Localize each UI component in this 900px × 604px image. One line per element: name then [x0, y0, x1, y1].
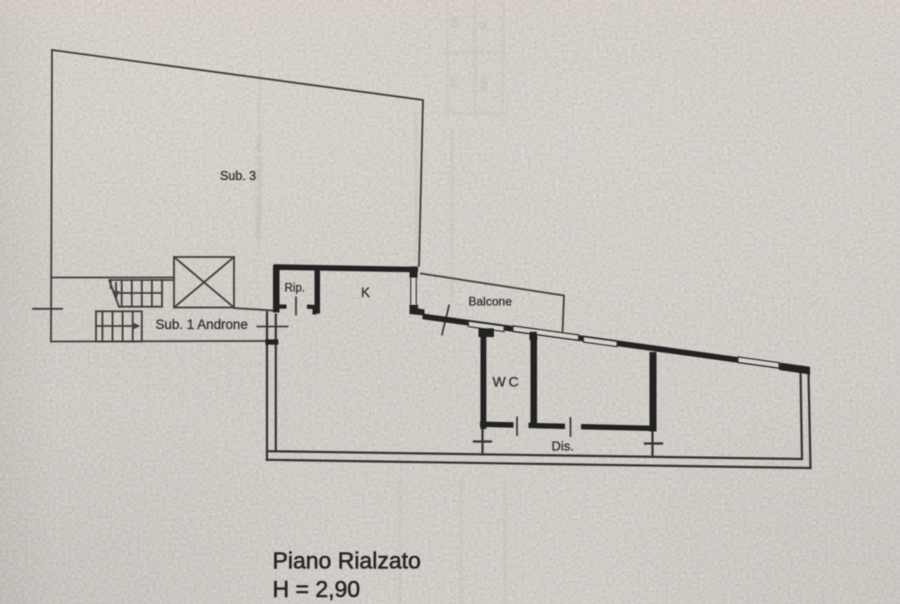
- svg-text:Sub. 1 Androne: Sub. 1 Androne: [156, 317, 248, 332]
- svg-text:H = 2,90: H = 2,90: [273, 576, 361, 602]
- svg-text:FC: FC: [450, 76, 460, 88]
- svg-text:OMSIDE GRAZI MV: OMSIDE GRAZI MV: [254, 134, 264, 238]
- svg-text:S/: S/: [479, 21, 489, 30]
- svg-text:Balcone: Balcone: [469, 295, 513, 309]
- svg-text:B/S: B/S: [479, 75, 489, 90]
- svg-text:C6: C6: [450, 16, 460, 28]
- svg-text:Rip.: Rip.: [285, 283, 305, 295]
- svg-text:Piano Rialzato: Piano Rialzato: [273, 548, 421, 574]
- svg-text:Dis.: Dis.: [552, 439, 574, 454]
- svg-text:Sub. 3: Sub. 3: [220, 169, 256, 183]
- svg-text:K: K: [361, 285, 370, 300]
- svg-text:WC: WC: [493, 374, 522, 390]
